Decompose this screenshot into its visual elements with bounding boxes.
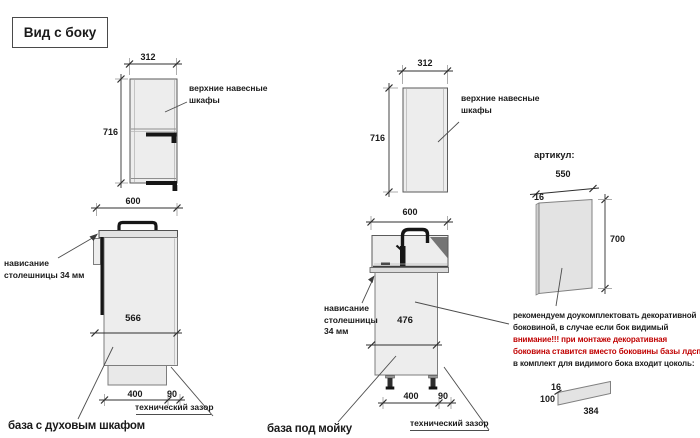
label-left-wall-cabinets: верхние навесные шкафы <box>189 83 269 106</box>
adjustable-leg-icon <box>386 376 395 390</box>
door-handle-icon <box>146 181 177 185</box>
countertop <box>99 231 178 238</box>
side-view-drawing: Вид с боку 312 716 верхние навесные шкаф… <box>0 0 700 438</box>
drawing-canvas <box>0 0 700 438</box>
caption-sink-base: база под мойку <box>267 423 352 436</box>
dim-label-plinth-height: 100 <box>532 394 555 404</box>
dim-label-left-lower-width: 600 <box>119 196 147 206</box>
label-middle-technical-gap: технический зазор <box>410 419 489 429</box>
note-line-2: боковиной, в случае если бок видимый <box>513 323 700 332</box>
dim-label-left-upper-height: 716 <box>98 127 118 137</box>
plinth-panel <box>108 366 167 386</box>
dim-label-panel-width: 550 <box>549 169 577 179</box>
dim-label-left-upper-width: 312 <box>134 52 162 62</box>
leader-left-overhang <box>58 234 98 259</box>
dim-label-middle-plinth: 400 <box>398 391 424 401</box>
dim-label-plinth-length: 384 <box>577 406 605 416</box>
adjustable-leg-icon <box>429 376 438 390</box>
article-heading: артикул: <box>534 151 575 162</box>
page-title: Вид с боку <box>12 17 108 48</box>
dim-label-middle-gap: 90 <box>435 391 451 401</box>
dim-label-middle-depth: 476 <box>391 316 419 327</box>
countertop <box>370 268 449 273</box>
oven-handle-icon <box>119 223 156 232</box>
dim-middle-upper-height <box>383 83 398 197</box>
label-middle-overhang: нависание столешницы 34 мм <box>324 303 382 338</box>
dim-label-middle-upper-width: 312 <box>411 58 439 68</box>
label-left-technical-gap: технический зазор <box>135 403 214 413</box>
note-line-5: в комплект для видимого бока входит цоко… <box>513 359 700 368</box>
middle-wall-cabinet <box>403 88 448 192</box>
dim-label-middle-upper-height: 716 <box>365 133 385 143</box>
leader-middle-overhang <box>362 276 375 304</box>
arrowhead-icon <box>368 276 375 284</box>
dim-label-left-gap: 90 <box>164 389 180 399</box>
door-handle-icon <box>146 133 177 137</box>
dim-label-left-plinth: 400 <box>122 389 148 399</box>
label-left-overhang: нависание столешницы 34 мм <box>4 258 86 281</box>
decorative-side-panel <box>536 200 592 296</box>
label-middle-wall-cabinets: верхние навесные шкафы <box>461 93 541 116</box>
dim-label-plinth-thickness: 16 <box>548 382 564 392</box>
left-wall-cabinet <box>130 79 177 191</box>
oven-control-panel <box>94 239 101 265</box>
note-line-1: рекомендуем доукомплектовать декоративно… <box>513 311 700 320</box>
note-line-4-warning: боковина ставится вместо боковины базы л… <box>513 347 700 356</box>
oven-door-edge <box>101 237 104 315</box>
dim-label-panel-height: 700 <box>610 234 638 244</box>
dim-label-middle-lower-width: 600 <box>396 207 424 217</box>
caption-oven-base: база с духовым шкафом <box>8 420 145 433</box>
dim-label-left-depth: 566 <box>119 314 147 325</box>
note-line-3-warning: внимание!!! при монтаже декоративная <box>513 335 700 344</box>
dim-label-panel-thickness: 16 <box>531 192 547 202</box>
